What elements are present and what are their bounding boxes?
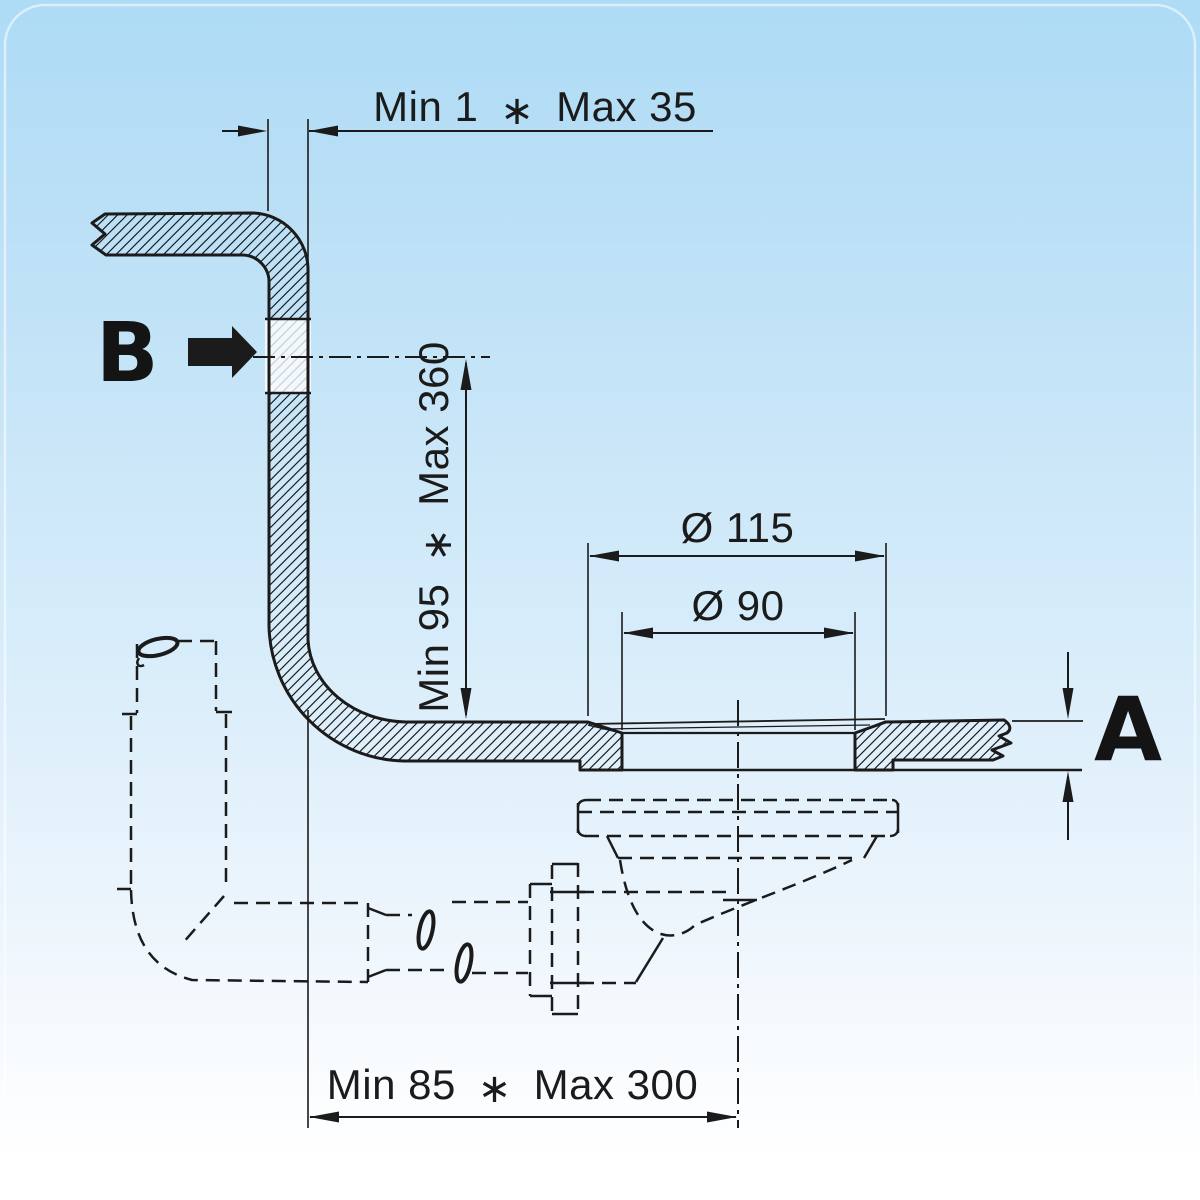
dimension-text-overflow-height: Min 95∗Max 360 — [411, 287, 459, 767]
pipe-break-ellipse-mid-1 — [416, 910, 437, 950]
horizontal-run-max: Max 300 — [534, 1061, 699, 1108]
horizontal-run-min: Min 85 — [327, 1061, 456, 1108]
strainer-assembly-dashed — [530, 800, 898, 1016]
overflow-height-max: Max 360 — [410, 341, 457, 506]
sink-overflow-drain-section-drawing — [0, 0, 1200, 1200]
tolerance-star: ∗ — [478, 90, 556, 134]
dimension-text-hole-diameter: Ø 90 — [650, 583, 826, 629]
dimension-text-flange-diameter: Ø 115 — [640, 505, 835, 551]
dimension-flange-diameter — [588, 543, 886, 716]
wall-offset-max: Max 35 — [556, 83, 697, 130]
b-arrow-shaft — [188, 338, 234, 366]
tolerance-star: ∗ — [456, 1068, 534, 1112]
wall-offset-min: Min 1 — [373, 83, 478, 130]
dimension-thickness-a — [1063, 652, 1074, 840]
technical-drawing-page: Min 1∗Max 35 Min 95∗Max 360 Ø 115 Ø 90 M… — [0, 0, 1200, 1200]
sink-bottom-right-section — [855, 720, 1011, 770]
pipe-break-ellipse-top — [137, 634, 180, 659]
dimension-text-wall-offset: Min 1∗Max 35 — [350, 84, 720, 131]
pipe-break-ellipse-mid-2 — [454, 943, 475, 983]
overflow-height-min: Min 95 — [410, 584, 457, 713]
label-thickness-a: A — [1094, 686, 1162, 774]
b-arrow-head — [232, 326, 257, 378]
basin-wall-section — [92, 213, 622, 770]
label-overflow-b: B — [96, 313, 159, 395]
dimension-overflow-height — [461, 359, 472, 719]
dimension-text-horizontal-run: Min 85∗Max 300 — [315, 1062, 710, 1109]
tolerance-star: ∗ — [417, 506, 461, 584]
basin-section — [92, 213, 1011, 770]
rounded-frame-accent — [5, 5, 1195, 1195]
